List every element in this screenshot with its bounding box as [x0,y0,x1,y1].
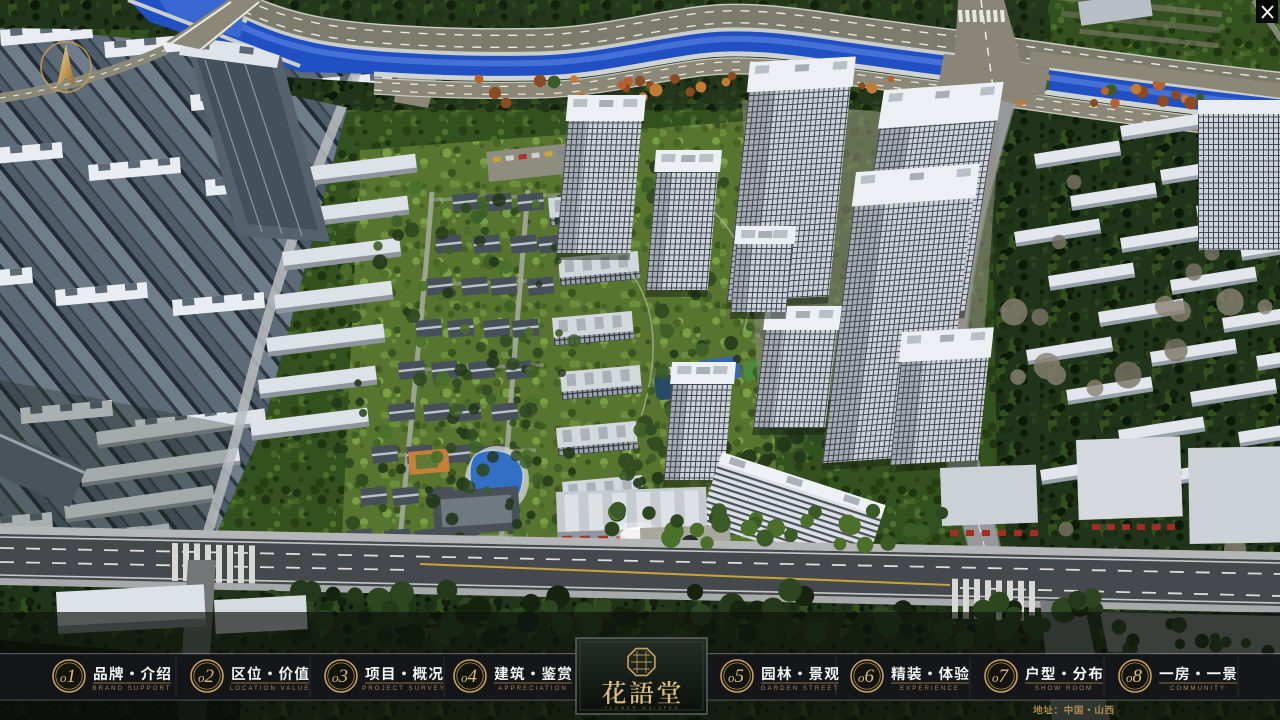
svg-text:o8: o8 [1126,666,1143,687]
svg-text:SHOW ROOM: SHOW ROOM [1035,685,1093,692]
svg-text:o6: o6 [858,666,875,687]
svg-text:F L O W E R · W H I S P E R: F L O W E R · W H I S P E R [605,706,678,710]
svg-text:BRAND SUPPORT: BRAND SUPPORT [92,685,171,692]
svg-text:o3: o3 [332,666,348,687]
svg-text:LOCATION VALUE: LOCATION VALUE [230,685,311,692]
svg-text:PROJECT SURVEY: PROJECT SURVEY [362,685,446,692]
svg-text:o5: o5 [728,666,744,687]
svg-text:EXPERIENCE: EXPERIENCE [900,685,960,692]
svg-text:o7: o7 [992,666,1010,687]
svg-text:COMMUNITY: COMMUNITY [1170,685,1226,692]
svg-text:GARDEN STREET: GARDEN STREET [761,685,840,692]
svg-text:APPRECIATION: APPRECIATION [498,685,568,692]
svg-text:o2: o2 [198,666,215,687]
svg-text:o1: o1 [60,666,76,687]
svg-text:o4: o4 [461,666,478,687]
